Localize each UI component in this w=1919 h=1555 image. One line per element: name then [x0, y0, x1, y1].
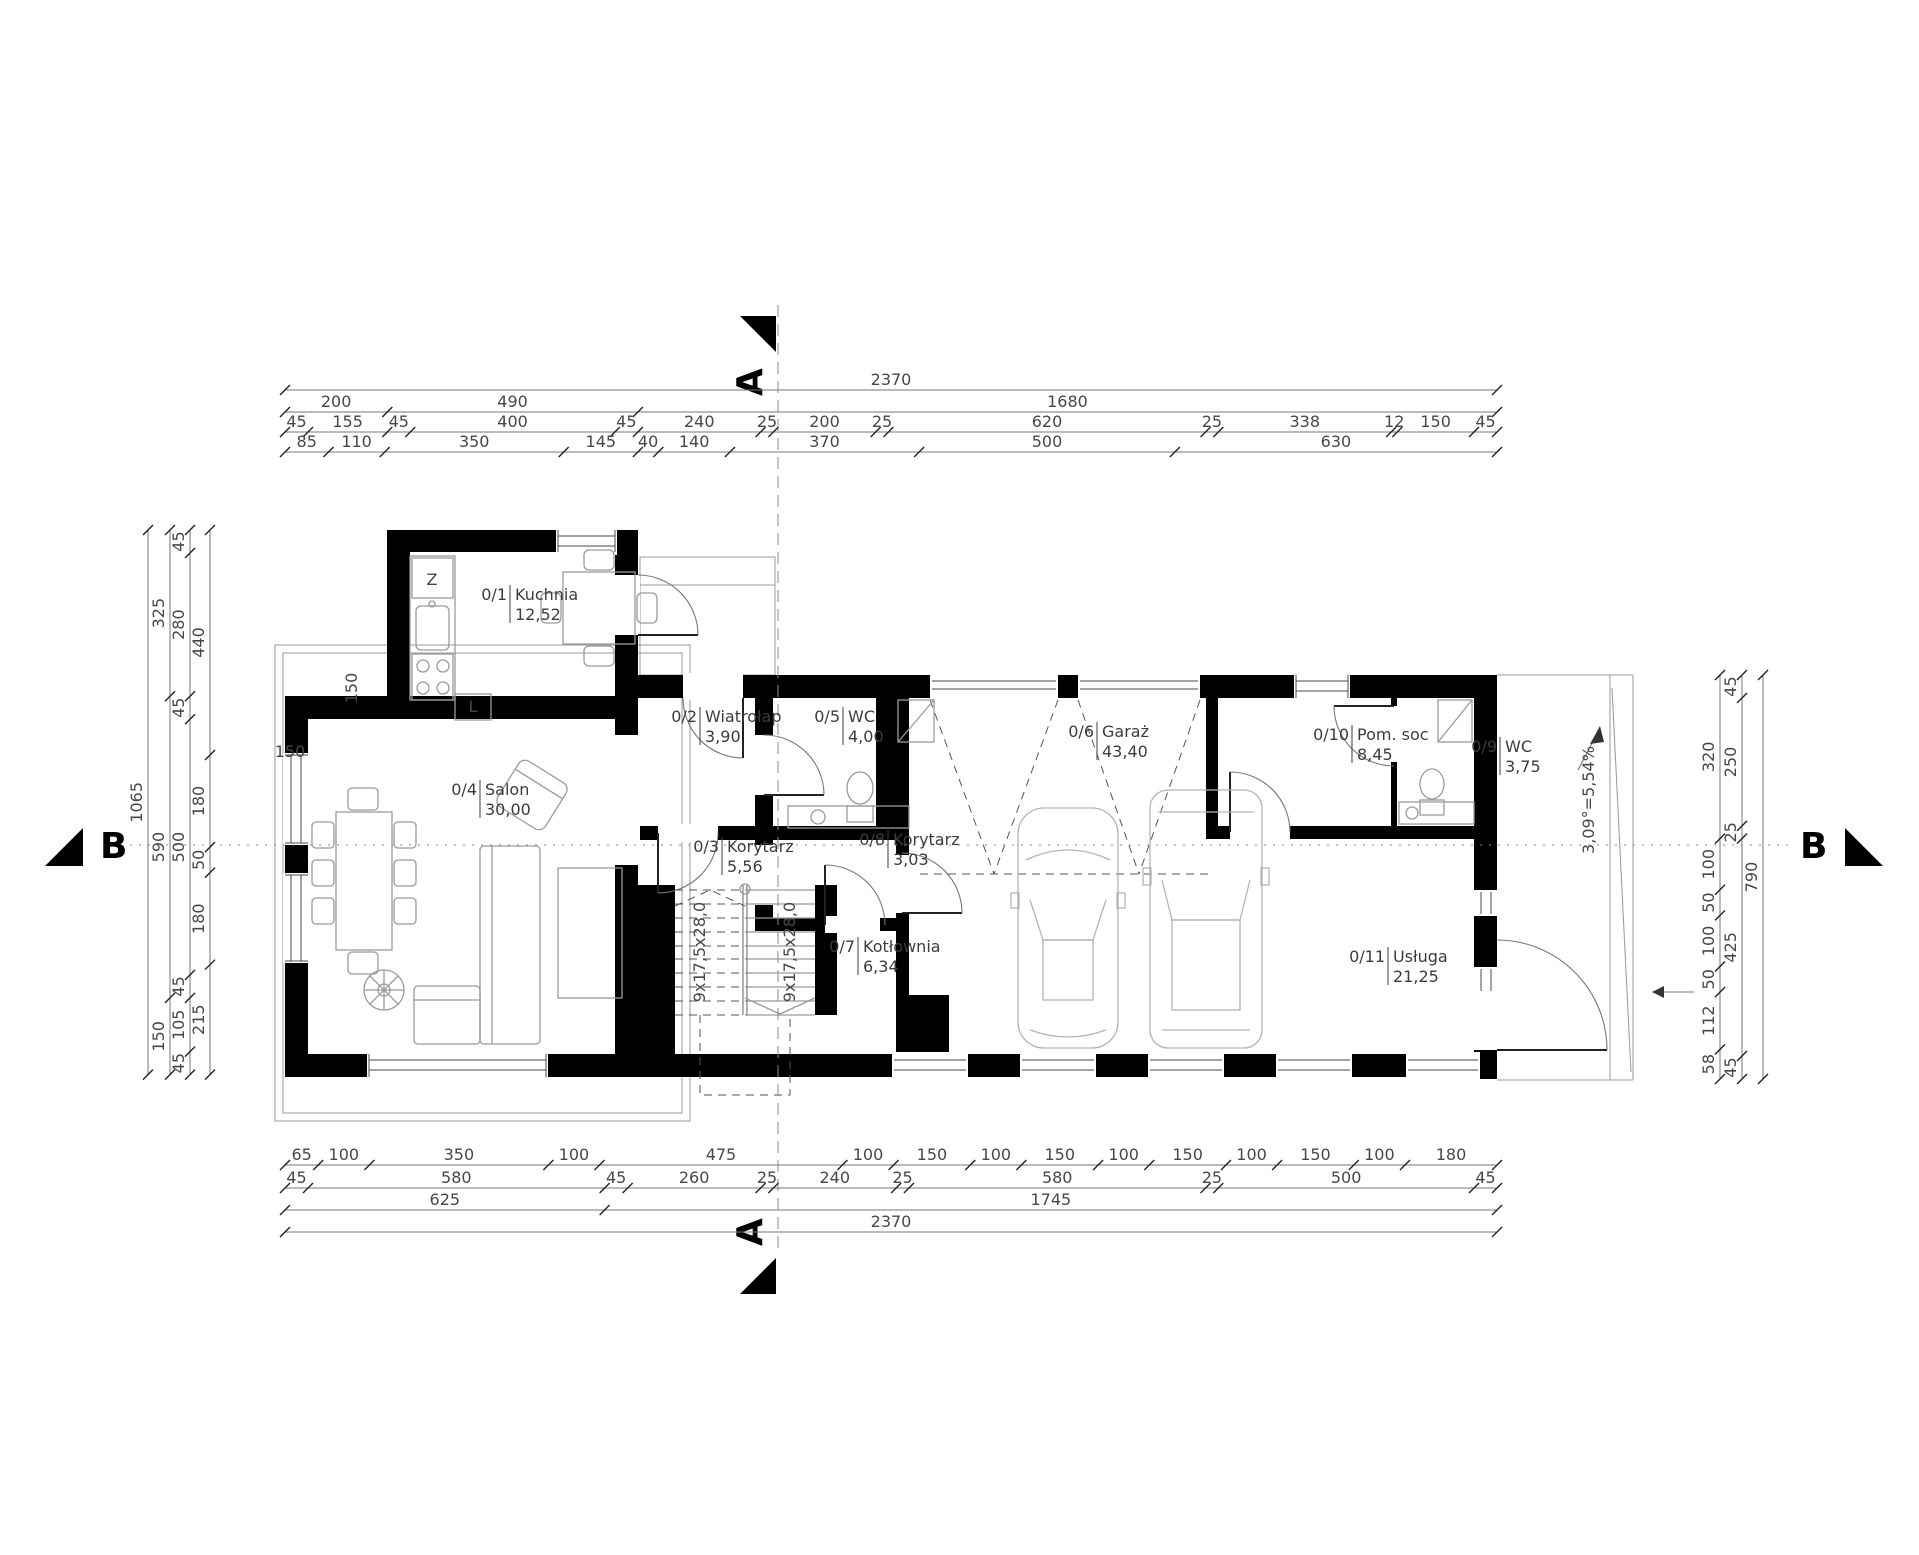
room-area: 4,00	[848, 727, 884, 746]
dimension-label: 58	[1699, 1054, 1718, 1074]
room-name: WC	[848, 707, 875, 726]
room-number: 0/1	[481, 585, 507, 604]
dimension-label: 25	[757, 1168, 777, 1187]
dimension-label: 1065	[127, 782, 146, 823]
dimension-label: 45	[169, 1053, 188, 1073]
dimension-label: 25	[872, 412, 892, 431]
pomsoc-door	[1230, 772, 1290, 832]
dimension-label: 400	[497, 412, 528, 431]
dimension-label: 25	[757, 412, 777, 431]
dimension-label: 25	[892, 1168, 912, 1187]
toilet	[847, 772, 873, 804]
dimension-label: 45	[616, 412, 636, 431]
dimension-label: 338	[1289, 412, 1320, 431]
floor-plan-drawing: A A B B 23702004901680451554540045240252…	[0, 0, 1919, 1555]
dimension-label: 100	[853, 1145, 884, 1164]
coffee-table	[558, 868, 622, 998]
section-b-left-triangle	[45, 828, 83, 866]
room-area: 3,75	[1505, 757, 1541, 776]
dimension-label: 155	[332, 412, 363, 431]
room-area: 8,45	[1357, 745, 1393, 764]
dimension-label: 100	[1699, 926, 1718, 957]
dimension-label: 350	[444, 1145, 475, 1164]
room-label: 0/10Pom. soc8,45	[1313, 725, 1428, 764]
usluga-entry-door	[1497, 940, 1607, 1050]
dimension-label: 215	[189, 1004, 208, 1035]
dimension-label: 620	[1032, 412, 1063, 431]
dimension-label: 25	[1202, 412, 1222, 431]
dimension-label: 45	[169, 531, 188, 551]
dimension-label: 2370	[871, 370, 912, 389]
car-1	[1011, 808, 1125, 1048]
room-label: 0/11Usługa21,25	[1349, 947, 1448, 986]
dimension-label: 150	[1044, 1145, 1075, 1164]
dimension-label: 100	[329, 1145, 360, 1164]
dimension-label: 45	[169, 698, 188, 718]
dimension-label: 180	[1436, 1145, 1467, 1164]
sink	[416, 606, 449, 650]
kitchen-counter	[410, 556, 491, 720]
room-name: Korytarz	[727, 837, 794, 856]
porch-outline	[640, 557, 775, 675]
dimension-label: 100	[559, 1145, 590, 1164]
room-area: 30,00	[485, 800, 531, 819]
room-label: 0/6Garaż43,40	[1068, 722, 1149, 761]
toilet	[1420, 769, 1444, 799]
wc9-counter	[1399, 802, 1474, 824]
dimension-label: 12	[1384, 412, 1404, 431]
room-area: 5,56	[727, 857, 763, 876]
section-a-bottom-triangle	[740, 1258, 776, 1294]
room-area: 43,40	[1102, 742, 1148, 761]
dimension-label: 50	[1699, 969, 1718, 989]
section-markers: A A B B	[45, 316, 1883, 1294]
dimension-label: 590	[149, 832, 168, 863]
section-b-left-label: B	[100, 826, 127, 867]
room-name: Wiatrołap	[705, 707, 782, 726]
dimension-label: 150	[1300, 1145, 1331, 1164]
annotation-label: 150	[342, 673, 361, 704]
dimension-label: 150	[149, 1021, 168, 1052]
annotation-label: 3,09°=5,54%	[1579, 746, 1598, 854]
dimension-label: 45	[1475, 412, 1495, 431]
dimension-label: 240	[684, 412, 715, 431]
dimension-label: 105	[169, 1010, 188, 1041]
dimension-label: 500	[169, 832, 188, 863]
dimension-label: 50	[189, 850, 208, 870]
plant	[364, 970, 404, 1010]
room-number: 0/9	[1471, 737, 1497, 756]
dimension-label: 240	[819, 1168, 850, 1187]
entrance-arrowhead	[1652, 986, 1664, 998]
dimension-label: 260	[679, 1168, 710, 1187]
annotation-label: Z	[427, 570, 438, 589]
room-number: 0/4	[451, 780, 477, 799]
dimension-label: 250	[1721, 747, 1740, 778]
dimension-label: 100	[1236, 1145, 1267, 1164]
room-name: Usługa	[1393, 947, 1448, 966]
room-area: 6,34	[863, 957, 899, 976]
room-label: 0/3Korytarz5,56	[693, 837, 793, 876]
dimension-label: 45	[389, 412, 409, 431]
dimension-label: 440	[189, 627, 208, 658]
dimension-label: 280	[169, 609, 188, 640]
dimension-label: 112	[1699, 1005, 1718, 1036]
annotation-label: 150	[275, 742, 306, 761]
dimension-label: 25	[1721, 822, 1740, 842]
dimension-label: 180	[189, 903, 208, 934]
wc9-fixtures	[1399, 700, 1474, 824]
dimension-label: 100	[981, 1145, 1012, 1164]
dimension-label: 200	[321, 392, 352, 411]
dimension-label: 100	[1699, 849, 1718, 880]
dimension-label: 425	[1721, 932, 1740, 963]
ramp-outline	[1497, 675, 1694, 1080]
dimension-label: 200	[809, 412, 840, 431]
slope-arrowhead	[1590, 726, 1604, 744]
dimension-label: 45	[169, 976, 188, 996]
room-area: 3,03	[893, 850, 929, 869]
dimension-label: 2370	[871, 1212, 912, 1231]
dimension-label: 150	[917, 1145, 948, 1164]
section-a-top-triangle	[740, 316, 776, 352]
dimension-label: 370	[809, 432, 840, 451]
annotation-label: 9x17,5x28,0	[780, 902, 799, 1002]
dimension-label: 500	[1331, 1168, 1362, 1187]
dimension-label: 790	[1742, 862, 1761, 893]
section-b-right-triangle	[1845, 828, 1883, 866]
dimension-label: 85	[297, 432, 317, 451]
room-label: 0/4Salon30,00	[451, 780, 531, 819]
section-lines	[130, 305, 1790, 1250]
sofa	[414, 846, 540, 1044]
room-area: 3,90	[705, 727, 741, 746]
dimension-label: 580	[1042, 1168, 1073, 1187]
dimension-label: 45	[286, 412, 306, 431]
dimension-label: 100	[1364, 1145, 1395, 1164]
dimension-label: 580	[441, 1168, 472, 1187]
dimension-label: 490	[497, 392, 528, 411]
room-number: 0/3	[693, 837, 719, 856]
dimension-label: 50	[1699, 892, 1718, 912]
room-number: 0/2	[671, 707, 697, 726]
dimension-label: 475	[706, 1145, 737, 1164]
room-area: 21,25	[1393, 967, 1439, 986]
dimension-label: 625	[430, 1190, 461, 1209]
dimension-label: 45	[286, 1168, 306, 1187]
dimension-label: 40	[638, 432, 658, 451]
dimension-label: 45	[1721, 676, 1740, 696]
dimension-label: 180	[189, 786, 208, 817]
dimension-label: 630	[1321, 432, 1352, 451]
garage-gate-swings	[920, 700, 1210, 874]
dimension-chains: 2370200490168045155454004524025200256202…	[127, 370, 1768, 1237]
room-number: 0/5	[814, 707, 840, 726]
room-number: 0/6	[1068, 722, 1094, 741]
dimension-label: 25	[1202, 1168, 1222, 1187]
dimension-label: 45	[1721, 1057, 1740, 1077]
walls	[285, 530, 1497, 1079]
room-name: Pom. soc	[1357, 725, 1429, 744]
room-number: 0/11	[1349, 947, 1385, 966]
dimension-label: 350	[459, 432, 490, 451]
dimension-label: 145	[586, 432, 617, 451]
room-number: 0/8	[859, 830, 885, 849]
room-name: Garaż	[1102, 722, 1149, 741]
room-number: 0/10	[1313, 725, 1349, 744]
kitchen-door	[638, 575, 698, 635]
annotation-label: L	[469, 697, 478, 716]
room-name: Salon	[485, 780, 529, 799]
room-name: Kuchnia	[515, 585, 578, 604]
dimension-label: 1745	[1030, 1190, 1071, 1209]
room-label: 0/5WC4,00	[814, 707, 883, 746]
annotation-label: 9x17,5x28,0	[690, 902, 709, 1002]
dimension-label: 325	[149, 598, 168, 629]
dimension-label: 150	[1172, 1145, 1203, 1164]
room-label: 0/7Kotłownia6,34	[829, 937, 940, 976]
section-a-top-label: A	[730, 368, 771, 396]
dimension-label: 65	[291, 1145, 311, 1164]
dimension-label: 45	[1475, 1168, 1495, 1187]
dimension-label: 1680	[1047, 392, 1088, 411]
room-name: Kotłownia	[863, 937, 941, 956]
dimension-label: 110	[341, 432, 372, 451]
room-name: Korytarz	[893, 830, 960, 849]
dining-table	[312, 788, 416, 974]
dimension-label: 320	[1699, 742, 1718, 773]
dimension-label: 500	[1032, 432, 1063, 451]
section-b-right-label: B	[1800, 826, 1827, 867]
dimension-label: 45	[606, 1168, 626, 1187]
dimension-label: 140	[679, 432, 710, 451]
room-name: WC	[1505, 737, 1532, 756]
dimension-label: 100	[1108, 1145, 1139, 1164]
room-area: 12,52	[515, 605, 561, 624]
room-label: 0/8Korytarz3,03	[859, 830, 959, 869]
dimension-label: 150	[1420, 412, 1451, 431]
room-number: 0/7	[829, 937, 855, 956]
